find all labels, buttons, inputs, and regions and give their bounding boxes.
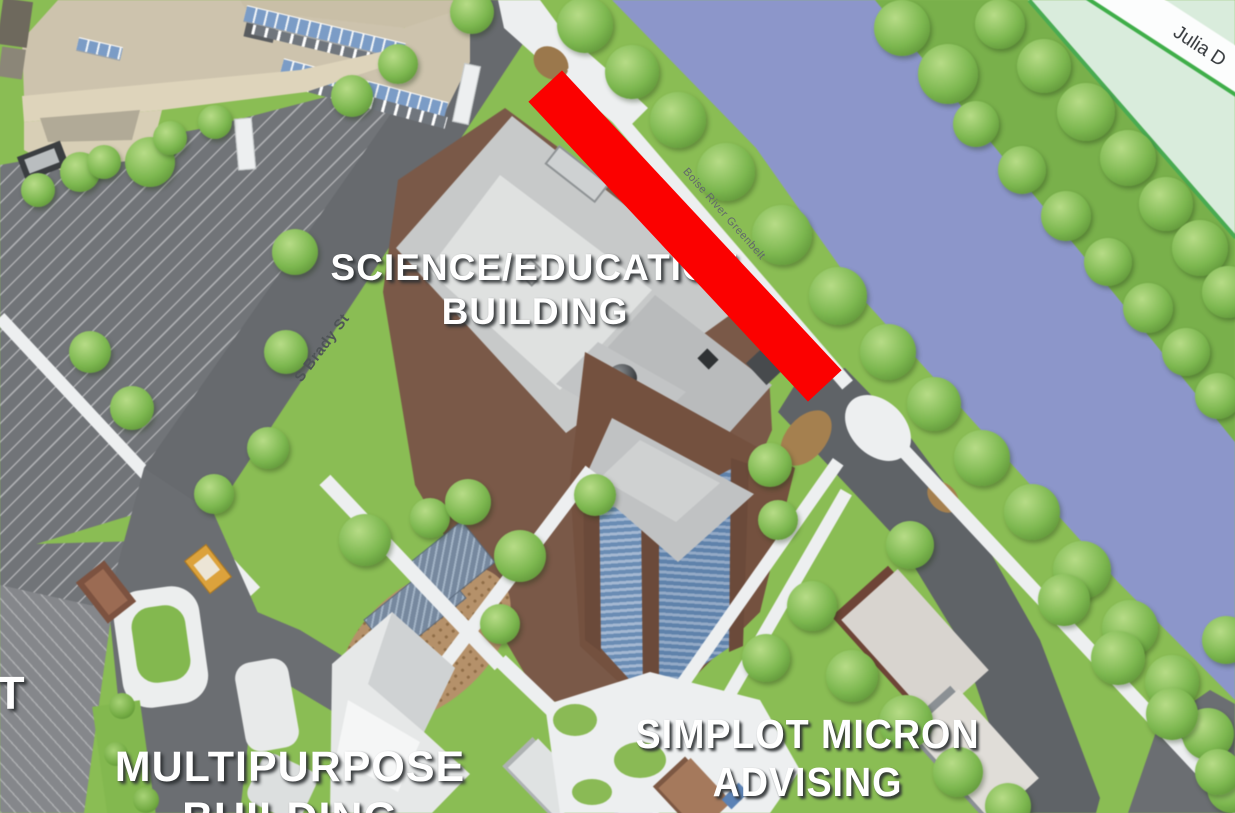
tree bbox=[748, 443, 792, 487]
tree bbox=[480, 604, 520, 644]
tree bbox=[860, 324, 916, 380]
tree bbox=[1038, 574, 1090, 626]
tree bbox=[1057, 83, 1115, 141]
tree bbox=[110, 386, 154, 430]
tree bbox=[918, 44, 978, 104]
tree bbox=[758, 500, 798, 540]
tree bbox=[742, 634, 790, 682]
tree bbox=[69, 331, 111, 373]
tree bbox=[1017, 39, 1071, 93]
tree bbox=[410, 498, 450, 538]
tree bbox=[494, 530, 546, 582]
tree bbox=[1041, 191, 1091, 241]
map-scenery bbox=[0, 0, 1235, 813]
label-simplot-micron: SIMPLOT MICRON ADVISING & SUCCESS HUB bbox=[561, 710, 1053, 813]
campus-map[interactable]: S Brady St Boise River Greenbelt Julia D… bbox=[0, 0, 1235, 813]
tree bbox=[153, 121, 187, 155]
tree bbox=[1004, 484, 1060, 540]
tree bbox=[975, 0, 1025, 49]
tree bbox=[198, 105, 232, 139]
tree bbox=[21, 173, 55, 207]
tree bbox=[954, 430, 1010, 486]
tree bbox=[557, 0, 613, 53]
tree bbox=[1084, 238, 1132, 286]
tree bbox=[998, 146, 1046, 194]
tree bbox=[605, 45, 659, 99]
tree bbox=[1195, 373, 1235, 419]
tree bbox=[1146, 688, 1198, 740]
tree bbox=[445, 479, 491, 525]
tree bbox=[1195, 749, 1235, 795]
tree bbox=[574, 474, 616, 516]
tree bbox=[194, 474, 234, 514]
tree bbox=[953, 101, 999, 147]
tree bbox=[1123, 283, 1173, 333]
tree bbox=[874, 0, 930, 56]
label-multipurpose: MULTIPURPOSE BUILDING bbox=[80, 742, 500, 813]
roof-corner-gray bbox=[0, 46, 26, 79]
tree bbox=[809, 267, 867, 325]
tree bbox=[886, 521, 934, 569]
tree bbox=[907, 377, 961, 431]
tree bbox=[331, 75, 373, 117]
tree bbox=[378, 44, 418, 84]
tree bbox=[787, 581, 837, 631]
label-left-edge-partial: T bbox=[0, 666, 36, 720]
tree bbox=[1162, 328, 1210, 376]
tree bbox=[1091, 631, 1145, 685]
tree bbox=[650, 92, 706, 148]
tree bbox=[87, 145, 121, 179]
tree bbox=[1100, 130, 1156, 186]
bush bbox=[109, 693, 135, 719]
tree bbox=[247, 427, 289, 469]
tree bbox=[339, 514, 391, 566]
tree bbox=[826, 650, 878, 702]
